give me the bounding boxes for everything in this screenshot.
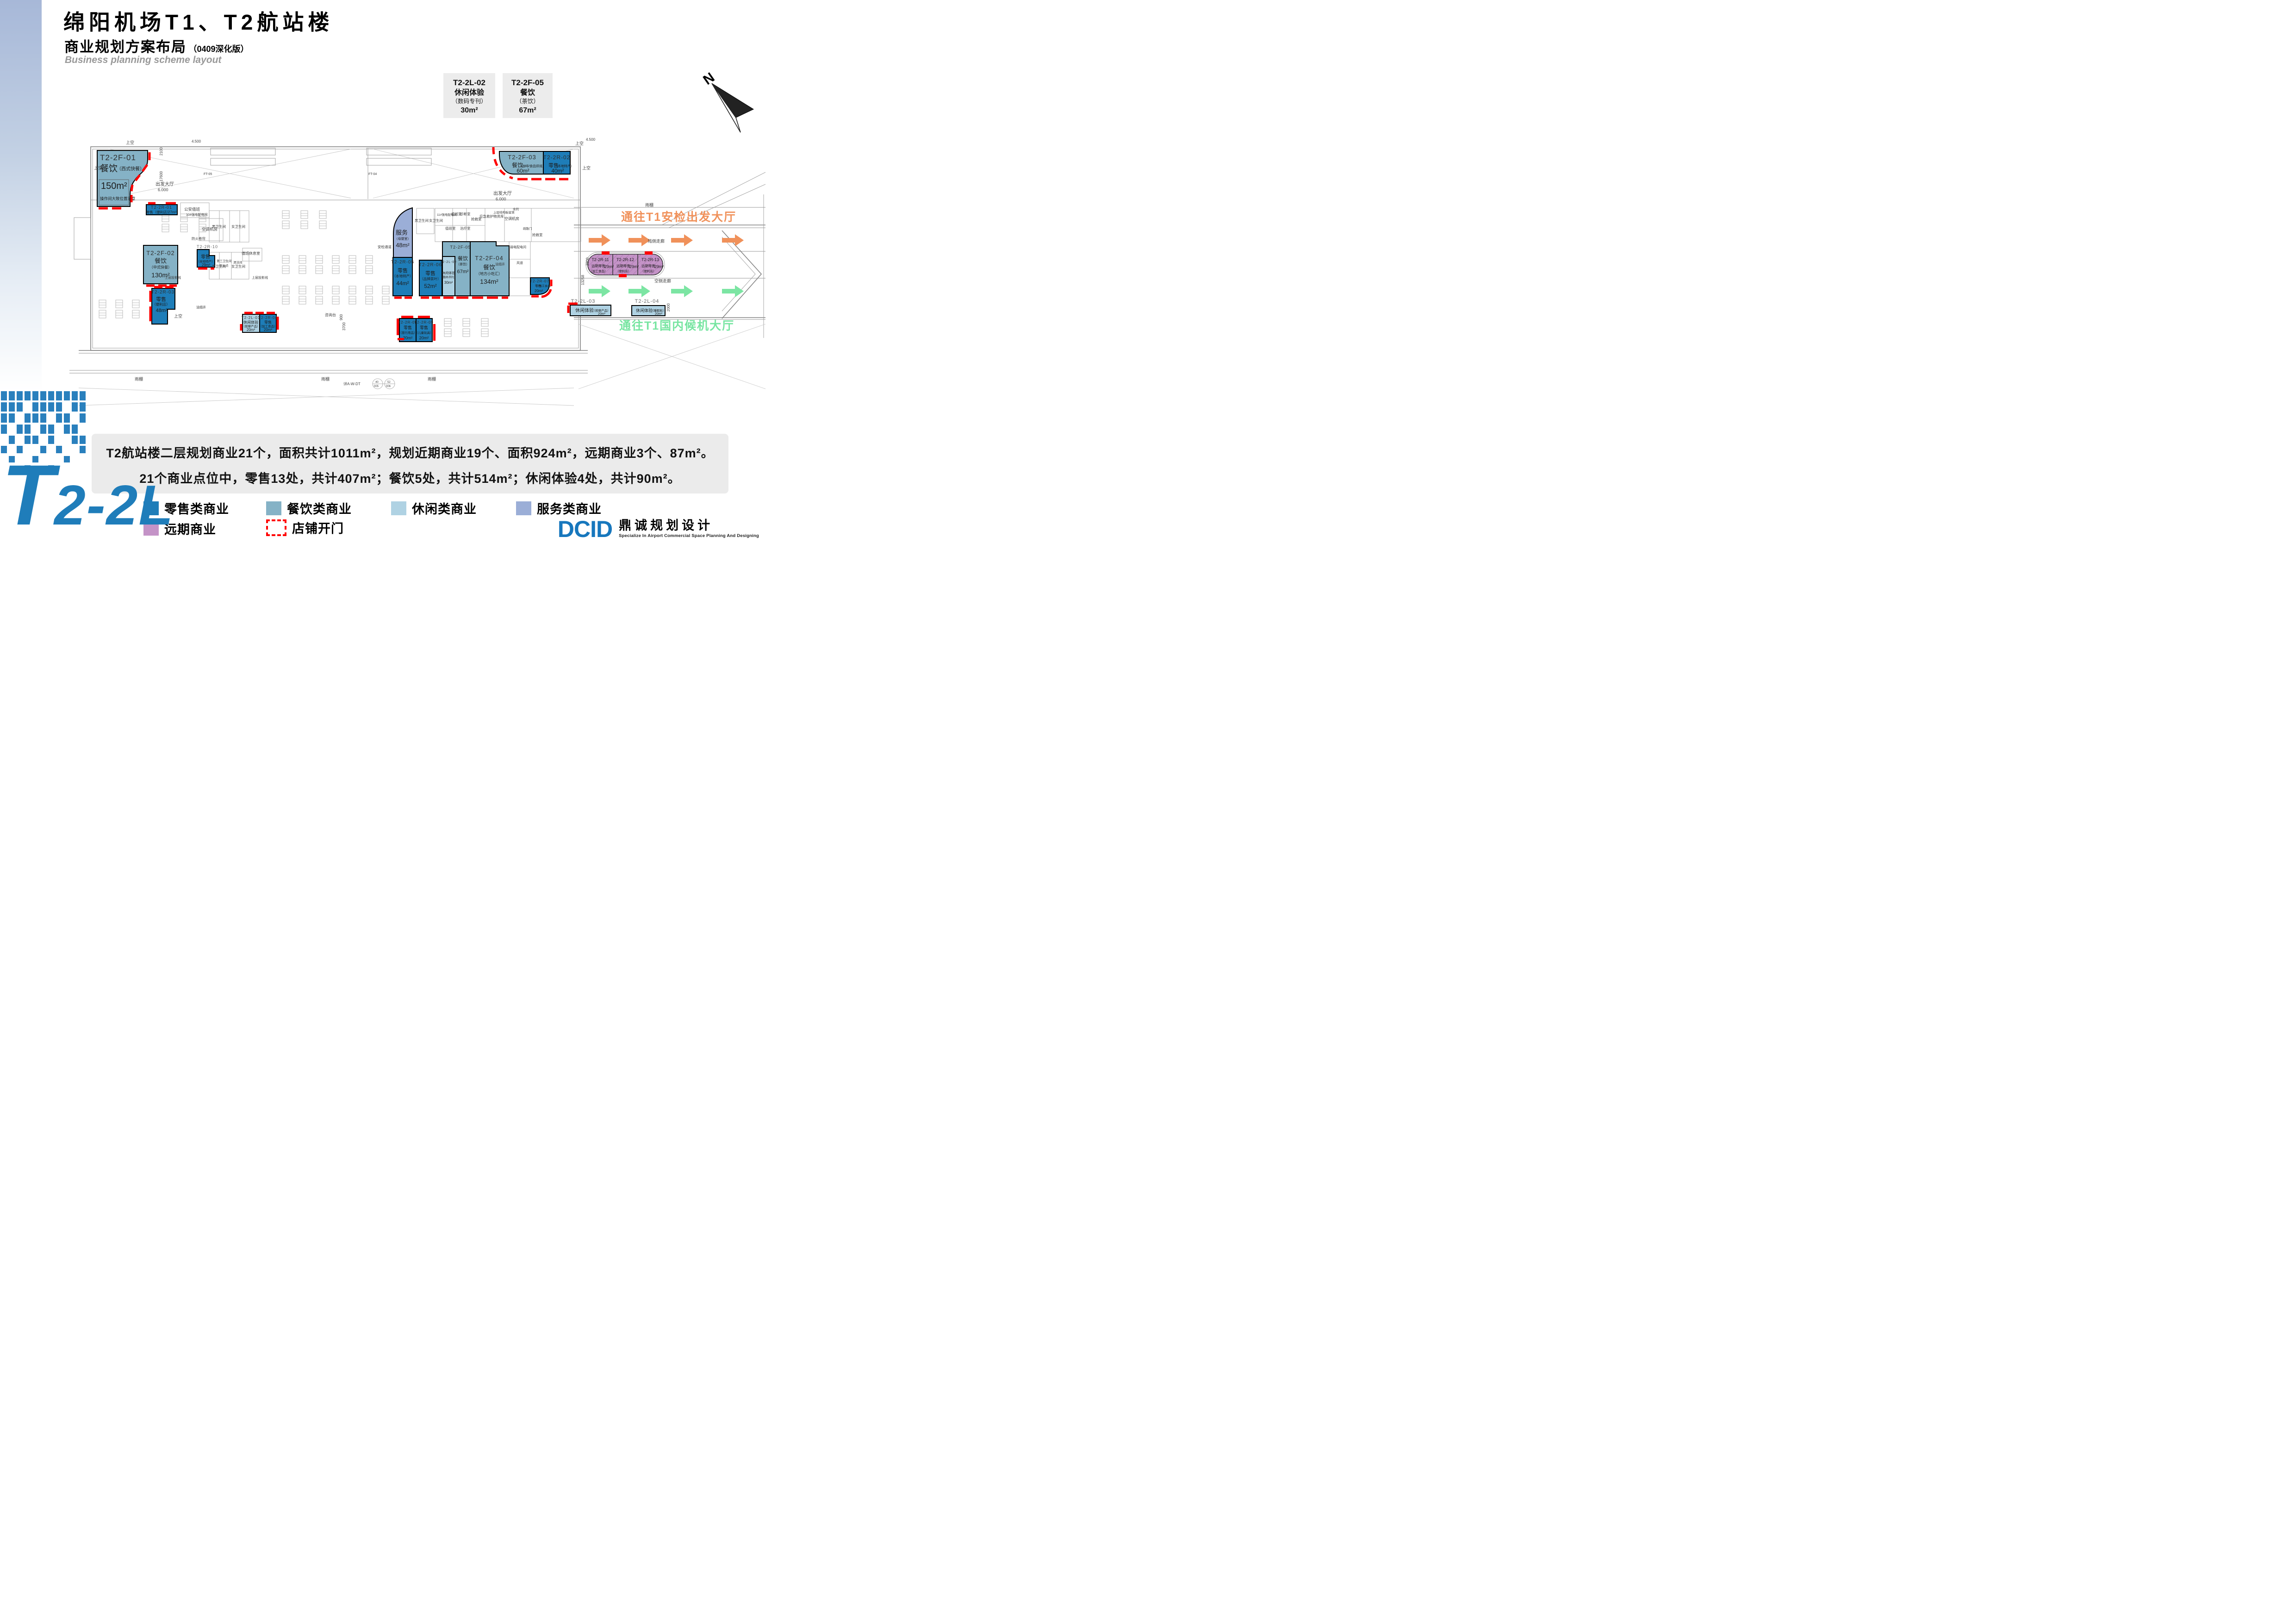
- block-area: 20m²: [247, 328, 255, 332]
- svg-text:3800: 3800: [585, 257, 590, 266]
- svg-text:上空: 上空: [126, 140, 134, 145]
- block-area: 20m²: [403, 336, 413, 340]
- route-arrows-green: [589, 285, 744, 297]
- block-id: T2-2R-12: [616, 257, 634, 262]
- summary-box: T2航站楼二层规划商业21个，面积共计1011m²，规划近期商业19个、面积92…: [92, 434, 728, 493]
- block-sub: （按摩产品）: [592, 308, 610, 312]
- svg-text:10#强电配电间: 10#强电配电间: [186, 212, 208, 217]
- svg-text:3700: 3700: [342, 322, 346, 331]
- svg-text:应急救护物资库: 应急救护物资库: [479, 214, 504, 219]
- svg-text:出发大厅: 出发大厅: [493, 190, 512, 196]
- block-area: 52m²: [424, 283, 436, 289]
- block-sub: （中式快餐）: [149, 265, 172, 269]
- svg-text:防火卷帘: 防火卷帘: [192, 236, 205, 241]
- block-T2-2F-04: T2-2F-04 餐饮 （地方小吃汇） 134m²: [470, 242, 509, 298]
- block-id: T2-2R-04: [258, 316, 278, 320]
- svg-text:咨询台: 咨询台: [325, 312, 336, 317]
- block-name: 休闲体验: [636, 308, 653, 313]
- block-T2-2F-03: T2-2F-03 餐饮 （咖啡/食品烘焙） 60m²: [493, 147, 546, 178]
- svg-text:空调机房: 空调机房: [504, 216, 519, 221]
- svg-text:女卫生间: 女卫生间: [231, 264, 245, 269]
- block-area: 40m²: [551, 168, 564, 174]
- floor-code-rest: 2-2L: [54, 477, 174, 533]
- block-T2-2R-01: T2-2R-01 零售（便利店） 27m²: [146, 203, 177, 215]
- svg-text:雨棚: 雨棚: [428, 376, 436, 381]
- floor-code-t: T: [2, 453, 54, 538]
- block-id: T2-2F-05: [450, 245, 471, 250]
- block-name: 远期零售: [616, 263, 630, 268]
- svg-text:40: 40: [375, 381, 379, 384]
- block-sub: （数码书刊）: [440, 275, 457, 279]
- block-sub: （母婴室）: [395, 237, 411, 241]
- block-id: T2-2L-01: [242, 316, 260, 320]
- block-id: T2-2R-05: [391, 260, 414, 265]
- block-T2-2L-04: T2-2L-04 休闲体验 （睡眠舱） 20m²: [632, 299, 666, 316]
- block-area: 27m²: [168, 210, 177, 214]
- block-note: 操作间大致位置示意: [100, 196, 136, 201]
- legend-service: 服务类商业: [516, 499, 602, 517]
- block-area: 44m²: [396, 280, 409, 287]
- svg-text:2100: 2100: [159, 147, 163, 156]
- svg-text:上空: 上空: [174, 313, 182, 319]
- svg-text:值班室: 值班室: [445, 226, 456, 231]
- block-T2-2R-07: T2-2R-07 零售 （加工食品） 20m²: [530, 278, 553, 297]
- block-future-retail: T2-2R-11 远期零售 29m² （加工食品） T2-2R-12 远期零售 …: [586, 251, 665, 277]
- svg-text:17600: 17600: [159, 171, 163, 181]
- block-sub: （便利店）: [152, 302, 170, 306]
- block-name: 餐饮: [458, 255, 468, 262]
- svg-text:安检通道: 安检通道: [378, 244, 392, 249]
- svg-text:FT-04: FT-04: [368, 173, 377, 176]
- block-area: 29m²: [629, 264, 639, 269]
- svg-text:雨棚: 雨棚: [135, 376, 143, 381]
- block-sub: （儿童玩具）: [415, 331, 433, 335]
- block-sub: （地方小吃汇）: [476, 271, 502, 276]
- legend-leisure-swatch: [391, 501, 406, 515]
- svg-text:上层投影线: 上层投影线: [252, 275, 268, 280]
- legend-dining: 餐饮类商业: [266, 499, 352, 517]
- block-area: 29m²: [202, 263, 211, 267]
- detail-annotation: 详A-W-DT 40 005 52 006: [343, 381, 391, 388]
- block-id: T2-2F-04: [475, 255, 503, 262]
- block-id: T2-2F-01: [100, 153, 136, 162]
- svg-text:清洁间: 清洁间: [233, 260, 243, 264]
- block-area: 20m²: [598, 312, 606, 316]
- svg-text:雨棚: 雨棚: [321, 376, 330, 381]
- block-name: 餐饮: [483, 264, 495, 271]
- svg-text:弱电配电间: 弱电配电间: [510, 245, 526, 249]
- svg-text:上层结构板留洞: 上层结构板留洞: [493, 210, 515, 214]
- svg-text:2000: 2000: [666, 303, 671, 312]
- company-logo: DCID 鼎诚规划设计 Specialize In Airport Commer…: [558, 519, 759, 538]
- logo-dcid: DCID: [558, 520, 612, 538]
- block-area: 134m²: [480, 278, 498, 285]
- block-sub: （本地特产）: [392, 274, 413, 278]
- block-id: T2-2R-06: [419, 262, 442, 268]
- room-labels: 上空 上空 上空 上空 上空 出发大厅 6.000 出发大厅 6.000 公安值…: [94, 140, 671, 381]
- block-sub: （品牌茶叶）: [420, 276, 441, 281]
- svg-text:男卫生间: 男卫生间: [415, 218, 429, 223]
- block-area: 60m²: [516, 168, 529, 174]
- svg-text:52: 52: [387, 381, 391, 384]
- block-id: T2-2R-11: [591, 257, 609, 262]
- legend-service-swatch: [516, 501, 531, 515]
- svg-text:详A-W-DT: 详A-W-DT: [343, 381, 361, 386]
- block-id: T2-2L-02: [440, 261, 457, 264]
- block-id: T2-2R-13: [641, 257, 659, 262]
- block-T2-2F-01: T2-2F-01 餐饮 （西式快餐） 150m² 操作间大致位置示意: [97, 150, 149, 208]
- svg-text:陆侧走廊: 陆侧走廊: [648, 238, 665, 244]
- svg-text:雨棚: 雨棚: [645, 202, 653, 207]
- block-name: 零售: [404, 325, 412, 330]
- svg-text:13258: 13258: [581, 275, 585, 285]
- block-name: 零售: [420, 325, 428, 330]
- svg-text:第三卫生间: 第三卫生间: [217, 259, 232, 263]
- svg-text:油烟井: 油烟井: [495, 262, 505, 266]
- route-arrows-orange: [589, 234, 744, 246]
- block-name: 零售: [156, 296, 166, 302]
- block-T2-2R-06: T2-2R-06 零售 （品牌茶叶） 52m²: [419, 260, 442, 298]
- legend-leisure-label: 休闲类商业: [412, 499, 477, 517]
- block-name: 零售: [398, 267, 408, 274]
- block-area: 29m²: [604, 264, 614, 269]
- block-name: 零售: [201, 254, 210, 260]
- block-name: 餐饮: [155, 257, 167, 264]
- block-sub: （睡眠舱）: [651, 308, 666, 312]
- svg-text:900: 900: [339, 314, 343, 320]
- svg-text:余同: 余同: [513, 207, 519, 211]
- svg-text:上空: 上空: [582, 165, 591, 170]
- svg-text:女卫生间: 女卫生间: [429, 218, 443, 223]
- block-name: 零售: [425, 270, 436, 276]
- block-id: T2-2R-03: [151, 290, 174, 295]
- svg-text:6.000: 6.000: [496, 197, 506, 201]
- svg-text:006: 006: [386, 385, 391, 388]
- svg-text:男卫生间: 男卫生间: [212, 224, 226, 229]
- svg-text:值班休息室: 值班休息室: [242, 251, 260, 256]
- block-sub: （旅行用品）: [399, 331, 417, 335]
- legend-door-swatch: [266, 519, 286, 536]
- svg-text:FT-05: FT-05: [204, 173, 212, 176]
- block-id: T2-2R-07: [530, 279, 549, 283]
- block-id: T2-2R-09: [414, 320, 434, 325]
- block-T2-2R-05: T2-2R-05 零售 （本地特产） 44m²: [391, 257, 414, 298]
- block-area: 20m²: [419, 336, 429, 340]
- block-T2-2L-01: T2-2L-01 休闲体验 （按摩产品） 20m²: [242, 314, 260, 332]
- block-id: T2-2R-10: [197, 244, 218, 249]
- block-name: 远期零售: [641, 263, 655, 268]
- block-name: 休闲体验: [575, 307, 594, 313]
- block-service: 服务 （母婴室） 48m²: [393, 208, 412, 257]
- legend-retail-label: 零售类商业: [164, 499, 229, 517]
- summary-line-1: T2航站楼二层规划商业21个，面积共计1011m²，规划近期商业19个、面积92…: [92, 443, 728, 461]
- svg-text:抢救室: 抢救室: [532, 232, 543, 237]
- block-area: 48m²: [156, 308, 167, 313]
- block-id: T2-2R-02: [543, 154, 571, 161]
- route-label-security: 通往T1安检出发大厅: [621, 210, 736, 224]
- block-sub: （加工食品）: [590, 269, 608, 273]
- svg-text:女卫生间: 女卫生间: [231, 224, 245, 229]
- page: 绵阳机场T1、T2航站楼 商业规划方案布局 （0409深化版） Business…: [0, 0, 765, 541]
- block-sub: （便利店）: [616, 269, 631, 273]
- block-name: 休闲体验: [243, 320, 258, 325]
- block-name: 服务: [396, 229, 408, 236]
- svg-text:4.500: 4.500: [192, 139, 201, 144]
- block-T2-2L-02: T2-2L-02 休闲体验 （数码书刊） 30m²: [440, 256, 457, 298]
- block-id: T2-2R-01: [151, 205, 172, 210]
- svg-text:上空: 上空: [94, 165, 102, 170]
- svg-text:4.500: 4.500: [586, 137, 596, 142]
- block-area: 20m²: [535, 289, 543, 293]
- block-area: 29m²: [654, 264, 664, 269]
- svg-text:诊断室: 诊断室: [460, 212, 471, 216]
- legend-dining-label: 餐饮类商业: [287, 499, 352, 517]
- block-name: 远期零售: [591, 263, 605, 268]
- svg-text:空侧走廊: 空侧走廊: [654, 278, 671, 283]
- logo-cn: 鼎诚规划设计: [619, 519, 759, 532]
- route-label-waiting: 通往T1国内候机大厅: [619, 319, 734, 332]
- legend-door: 店铺开门: [266, 518, 344, 537]
- svg-text:油烟井: 油烟井: [196, 305, 206, 309]
- block-T2-2L-03: T2-2L-03 休闲体验 （按摩产品） 20m²: [568, 299, 611, 316]
- svg-text:6.000: 6.000: [158, 187, 168, 192]
- block-id: T2-2F-03: [508, 154, 536, 161]
- block-area: 30m²: [444, 281, 453, 285]
- block-id: T2-2L-04: [635, 299, 660, 304]
- svg-text:疏散门: 疏散门: [523, 226, 532, 231]
- block-name: 休闲体验: [442, 271, 455, 275]
- block-name: 零售: [264, 320, 272, 325]
- svg-text:饮水点: 饮水点: [219, 263, 229, 268]
- svg-text:治疗室: 治疗室: [460, 226, 471, 231]
- block-sub: （西式快餐）: [117, 166, 144, 172]
- summary-line-2: 21个商业点位中，零售13处，共计407m²；餐饮5处，共计514m²；休闲体验…: [92, 468, 728, 487]
- legend-leisure: 休闲类商业: [391, 499, 477, 517]
- svg-text:风道: 风道: [516, 261, 523, 265]
- block-T2-2R-03: T2-2R-03 零售 （便利店） 48m²: [150, 287, 175, 324]
- svg-text:上层投影线: 上层投影线: [165, 275, 181, 280]
- block-area: 20m²: [655, 312, 663, 316]
- logo-en: Specialize In Airport Commercial Space P…: [619, 533, 759, 538]
- block-id: T2-2F-02: [146, 250, 174, 256]
- svg-text:出发大厅: 出发大厅: [156, 181, 174, 187]
- block-name: 餐饮: [100, 163, 118, 174]
- block-area: 67m²: [457, 269, 468, 275]
- block-area: 20m²: [264, 328, 273, 332]
- floor-code: T2-2L: [2, 453, 174, 538]
- block-area: 48m²: [396, 242, 410, 249]
- block-sub: （茶饮）: [456, 262, 469, 266]
- svg-text:005: 005: [374, 385, 379, 388]
- block-name: 零售（便利店）: [146, 210, 171, 214]
- legend-door-label: 店铺开门: [292, 518, 344, 537]
- block-sub: （便利店）: [641, 269, 656, 273]
- block-area: 150m²: [101, 181, 127, 191]
- svg-text:上空: 上空: [575, 141, 584, 146]
- legend-service-label: 服务类商业: [537, 499, 602, 517]
- svg-text:公安值班: 公安值班: [184, 207, 200, 212]
- legend-dining-swatch: [266, 501, 281, 515]
